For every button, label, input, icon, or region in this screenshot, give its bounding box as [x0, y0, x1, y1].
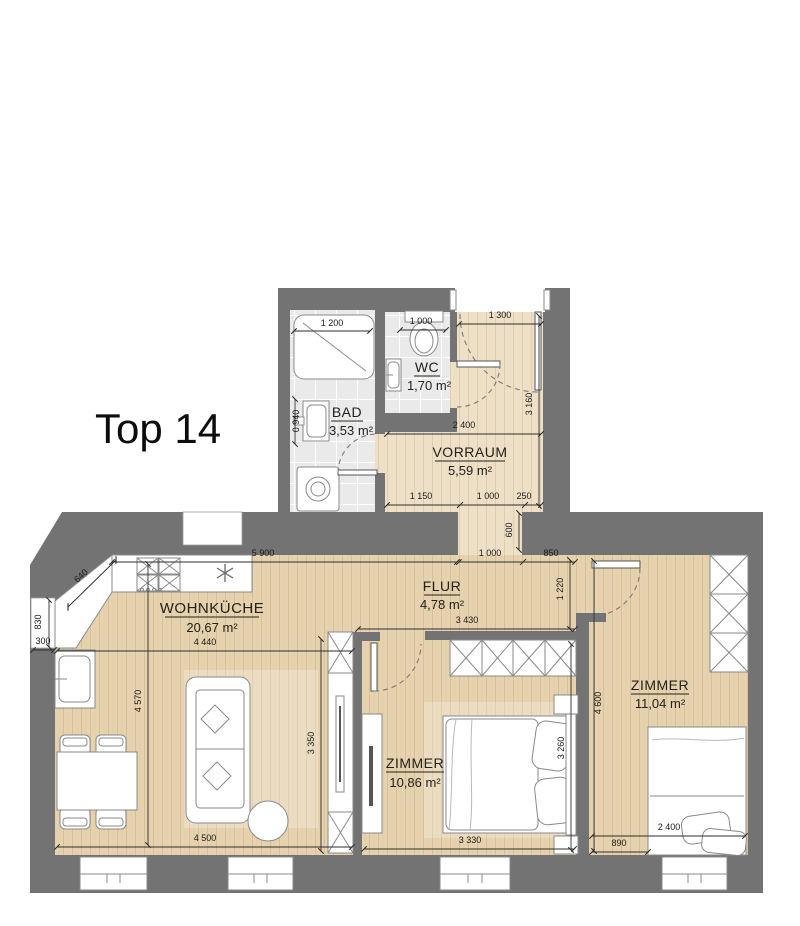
sofa: [186, 677, 250, 823]
kitchen-sink: [55, 650, 95, 708]
zimmer-mitte-door-leaf: [371, 643, 377, 691]
wc-door-leaf: [457, 361, 500, 367]
svg-text:WC: WC: [415, 359, 439, 375]
svg-text:250: 250: [516, 491, 531, 501]
window: [662, 857, 727, 890]
pillow: [701, 828, 747, 856]
svg-text:3 350: 3 350: [306, 732, 316, 755]
svg-text:ZIMMER: ZIMMER: [631, 677, 689, 693]
nightstand: [554, 836, 578, 854]
floor-plan-drawing: 1 200 0 940 1 000 1 300 3 160 2 400 1 15…: [0, 0, 800, 926]
single-bed: [648, 727, 747, 856]
page-title: Top 14: [95, 405, 221, 452]
tv-board: [362, 714, 382, 833]
svg-text:4 500: 4 500: [194, 833, 217, 843]
svg-text:WOHNKÜCHE: WOHNKÜCHE: [160, 599, 265, 617]
wall-kitchen-zimmer: [353, 641, 362, 855]
svg-text:3 430: 3 430: [456, 615, 479, 625]
entrance-frame-right: [544, 290, 550, 310]
wall-niche-top: [183, 512, 242, 545]
svg-text:1 000: 1 000: [477, 491, 500, 501]
zimmer-rechts-door-leaf: [592, 561, 640, 568]
svg-text:1 200: 1 200: [321, 318, 344, 328]
svg-text:10,86 m²: 10,86 m²: [389, 775, 441, 790]
coffee-table: [248, 801, 288, 841]
entrance-opening: [455, 288, 545, 312]
svg-text:2 400: 2 400: [453, 420, 476, 430]
bad-door-leaf: [338, 470, 377, 475]
wc-sink: [386, 359, 401, 391]
window: [80, 857, 147, 890]
svg-text:4 600: 4 600: [593, 692, 603, 715]
double-bed: [443, 714, 576, 835]
svg-text:600: 600: [504, 522, 514, 537]
wall-zimmer-divider-stub: [576, 613, 606, 622]
label-zimmer-rechts: ZIMMER 11,04 m²: [631, 677, 689, 711]
svg-text:4 570: 4 570: [133, 690, 143, 713]
dining-table: [57, 752, 137, 810]
window: [228, 857, 293, 890]
svg-text:1 220: 1 220: [555, 578, 565, 601]
svg-text:4 440: 4 440: [194, 637, 217, 647]
label-zimmer-mitte: ZIMMER 10,86 m²: [386, 755, 444, 790]
svg-text:3 330: 3 330: [459, 835, 482, 845]
svg-text:890: 890: [611, 838, 626, 848]
floor-opening-wc-door: [450, 362, 457, 408]
svg-text:300: 300: [35, 636, 50, 646]
wardrobe: [450, 640, 576, 676]
wall-zimmer-divider: [576, 613, 589, 855]
nightstand: [554, 695, 578, 714]
floor-doorway-zimmer-rechts: [576, 555, 589, 613]
svg-text:3 260: 3 260: [556, 737, 566, 760]
svg-text:830: 830: [33, 614, 43, 629]
wall-kitchen-zimmer-stub: [353, 632, 380, 641]
stove: [137, 558, 180, 592]
wall-flur-zimmer: [425, 631, 576, 640]
washing-machine: [297, 467, 339, 511]
kitchen-counter: [112, 555, 252, 592]
svg-text:1 300: 1 300: [489, 310, 512, 320]
svg-text:5,59 m²: 5,59 m²: [448, 463, 493, 478]
entrance-frame-left: [450, 290, 456, 310]
svg-text:0 940: 0 940: [291, 410, 301, 433]
svg-text:3 160: 3 160: [524, 393, 534, 416]
label-flur: FLUR 4,78 m²: [420, 578, 465, 612]
svg-text:1 000: 1 000: [410, 316, 433, 326]
svg-text:11,04 m²: 11,04 m²: [635, 696, 686, 711]
svg-text:2 400: 2 400: [658, 822, 681, 832]
wardrobe: [710, 555, 748, 672]
svg-text:1 000: 1 000: [479, 548, 502, 558]
svg-text:1,70 m²: 1,70 m²: [407, 378, 452, 393]
svg-text:FLUR: FLUR: [423, 578, 462, 594]
dining-set: [57, 735, 137, 829]
svg-text:4,78 m²: 4,78 m²: [420, 597, 465, 612]
svg-text:ZIMMER: ZIMMER: [386, 755, 444, 771]
svg-text:20,67 m²: 20,67 m²: [186, 620, 238, 635]
svg-text:3,53 m²: 3,53 m²: [329, 423, 374, 438]
floor-plan: 1 200 0 940 1 000 1 300 3 160 2 400 1 15…: [0, 0, 800, 926]
shelf-unit: [328, 632, 353, 853]
svg-text:BAD: BAD: [332, 404, 362, 420]
window: [440, 857, 510, 890]
svg-text:5 900: 5 900: [252, 548, 275, 558]
svg-text:VORRAUM: VORRAUM: [432, 444, 507, 460]
svg-text:1 150: 1 150: [410, 491, 433, 501]
svg-text:850: 850: [543, 548, 558, 558]
floor-opening-bad-door: [375, 434, 385, 473]
